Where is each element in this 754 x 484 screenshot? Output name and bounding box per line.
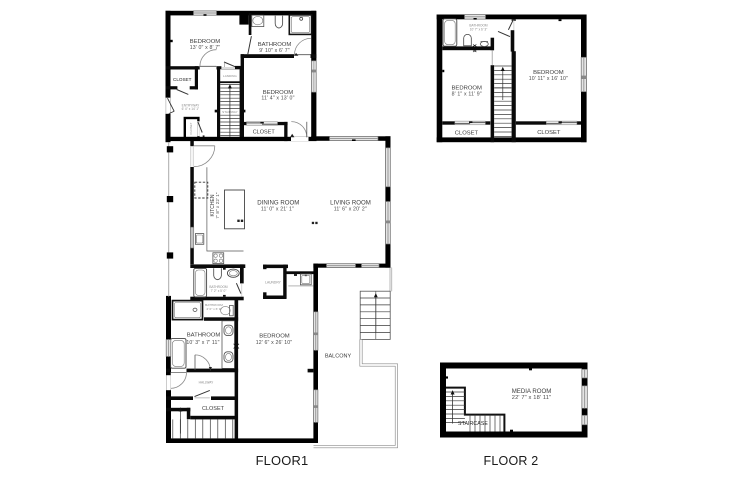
svg-text:8' 1" x 11' 9": 8' 1" x 11' 9" xyxy=(452,92,482,98)
svg-text:STAIRCASE: STAIRCASE xyxy=(458,421,488,427)
svg-text:10' 7" x 6' 3": 10' 7" x 6' 3" xyxy=(470,27,487,31)
svg-text:BEDROOM: BEDROOM xyxy=(190,39,221,45)
svg-text:22' 7" x 18' 11": 22' 7" x 18' 11" xyxy=(512,395,552,401)
svg-text:DINING ROOM: DINING ROOM xyxy=(257,200,299,207)
svg-text:7' 8" x 22' 1": 7' 8" x 22' 1" xyxy=(215,192,220,218)
svg-text:4' 0" x 6' 9": 4' 0" x 6' 9" xyxy=(206,307,221,311)
svg-text:7' 2" x 5' 0": 7' 2" x 5' 0" xyxy=(211,289,227,293)
svg-text:10' 3" x 7' 11": 10' 3" x 7' 11" xyxy=(186,340,219,346)
svg-text:CLOSET: CLOSET xyxy=(189,122,193,134)
svg-text:11' 6" x 20' 2": 11' 6" x 20' 2" xyxy=(334,206,367,212)
svg-text:9' 10" x 6' 7": 9' 10" x 6' 7" xyxy=(259,48,290,54)
svg-text:CLOSET: CLOSET xyxy=(537,130,561,136)
svg-text:LANDING: LANDING xyxy=(223,74,237,78)
svg-text:CLOSET: CLOSET xyxy=(455,130,479,136)
svg-text:CLOSET: CLOSET xyxy=(173,77,192,82)
svg-text:BATHROOM: BATHROOM xyxy=(258,42,292,48)
svg-text:FLOOR1: FLOOR1 xyxy=(256,453,309,468)
svg-text:CLOSET: CLOSET xyxy=(202,406,225,412)
svg-text:10' 11" x 16' 10": 10' 11" x 16' 10" xyxy=(529,76,568,82)
svg-text:FLOOR 2: FLOOR 2 xyxy=(484,454,539,468)
svg-text:BEDROOM: BEDROOM xyxy=(451,85,482,91)
svg-text:6' 4" x 14' 1": 6' 4" x 14' 1" xyxy=(182,107,199,111)
svg-text:BEDROOM: BEDROOM xyxy=(259,333,290,339)
svg-text:CLOSET: CLOSET xyxy=(253,130,276,136)
svg-text:BATHROOM: BATHROOM xyxy=(187,332,221,338)
svg-text:LAUNDRY: LAUNDRY xyxy=(265,281,281,285)
svg-text:BALCONY: BALCONY xyxy=(325,354,352,360)
svg-text:11' 4" x 13' 0": 11' 4" x 13' 0" xyxy=(261,96,294,102)
svg-text:13' 0" x 8' 7": 13' 0" x 8' 7" xyxy=(190,45,221,51)
svg-text:HALLWAY: HALLWAY xyxy=(199,381,215,385)
svg-text:11' 0" x 21' 1": 11' 0" x 21' 1" xyxy=(261,207,294,213)
svg-text:12' 6" x 26' 10": 12' 6" x 26' 10" xyxy=(256,340,293,346)
